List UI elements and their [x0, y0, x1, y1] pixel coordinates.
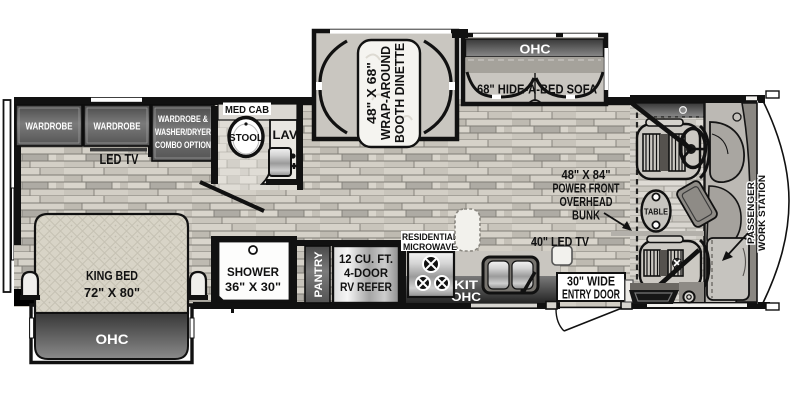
svg-text:RV REFER: RV REFER — [340, 282, 393, 294]
svg-text:WARDROBE: WARDROBE — [94, 121, 141, 133]
svg-text:30" WIDE: 30" WIDE — [567, 275, 615, 289]
svg-text:OHC: OHC — [451, 292, 481, 304]
svg-text:40" LED TV: 40" LED TV — [531, 234, 589, 249]
svg-text:PANTRY: PANTRY — [313, 251, 325, 298]
svg-text:MICROWAVE: MICROWAVE — [403, 242, 457, 253]
svg-text:WARDROBE: WARDROBE — [26, 121, 73, 133]
svg-text:BOOTH DINETTE: BOOTH DINETTE — [393, 43, 407, 143]
svg-text:STOOL: STOOL — [229, 133, 263, 144]
svg-text:KING BED: KING BED — [86, 269, 138, 283]
svg-text:WORK STATION: WORK STATION — [757, 175, 768, 251]
svg-text:ENTRY DOOR: ENTRY DOOR — [562, 288, 620, 302]
svg-text:LED TV: LED TV — [100, 151, 139, 168]
svg-text:36" X 30": 36" X 30" — [225, 280, 281, 294]
svg-text:WASHER/DRYER: WASHER/DRYER — [155, 127, 211, 138]
svg-text:OHC: OHC — [520, 42, 552, 57]
svg-text:TABLE: TABLE — [644, 208, 669, 217]
svg-text:SHOWER: SHOWER — [227, 265, 279, 279]
svg-text:COMBO OPTION: COMBO OPTION — [155, 140, 211, 151]
svg-text:WRAP-AROUND: WRAP-AROUND — [379, 46, 393, 140]
svg-text:BUNK: BUNK — [572, 208, 600, 223]
svg-text:LAV: LAV — [273, 130, 298, 142]
svg-text:KIT: KIT — [454, 280, 478, 292]
svg-text:68" HIDE-A-BED SOFA: 68" HIDE-A-BED SOFA — [477, 82, 598, 97]
svg-text:OHC: OHC — [96, 332, 129, 347]
svg-text:12 CU. FT.: 12 CU. FT. — [339, 254, 393, 266]
svg-text:48" X 68": 48" X 68" — [365, 62, 379, 124]
svg-text:4-DOOR: 4-DOOR — [344, 268, 389, 280]
svg-text:WARDROBE &: WARDROBE & — [158, 114, 208, 125]
svg-text:MED CAB: MED CAB — [225, 104, 269, 116]
svg-text:72" X 80": 72" X 80" — [84, 286, 140, 300]
